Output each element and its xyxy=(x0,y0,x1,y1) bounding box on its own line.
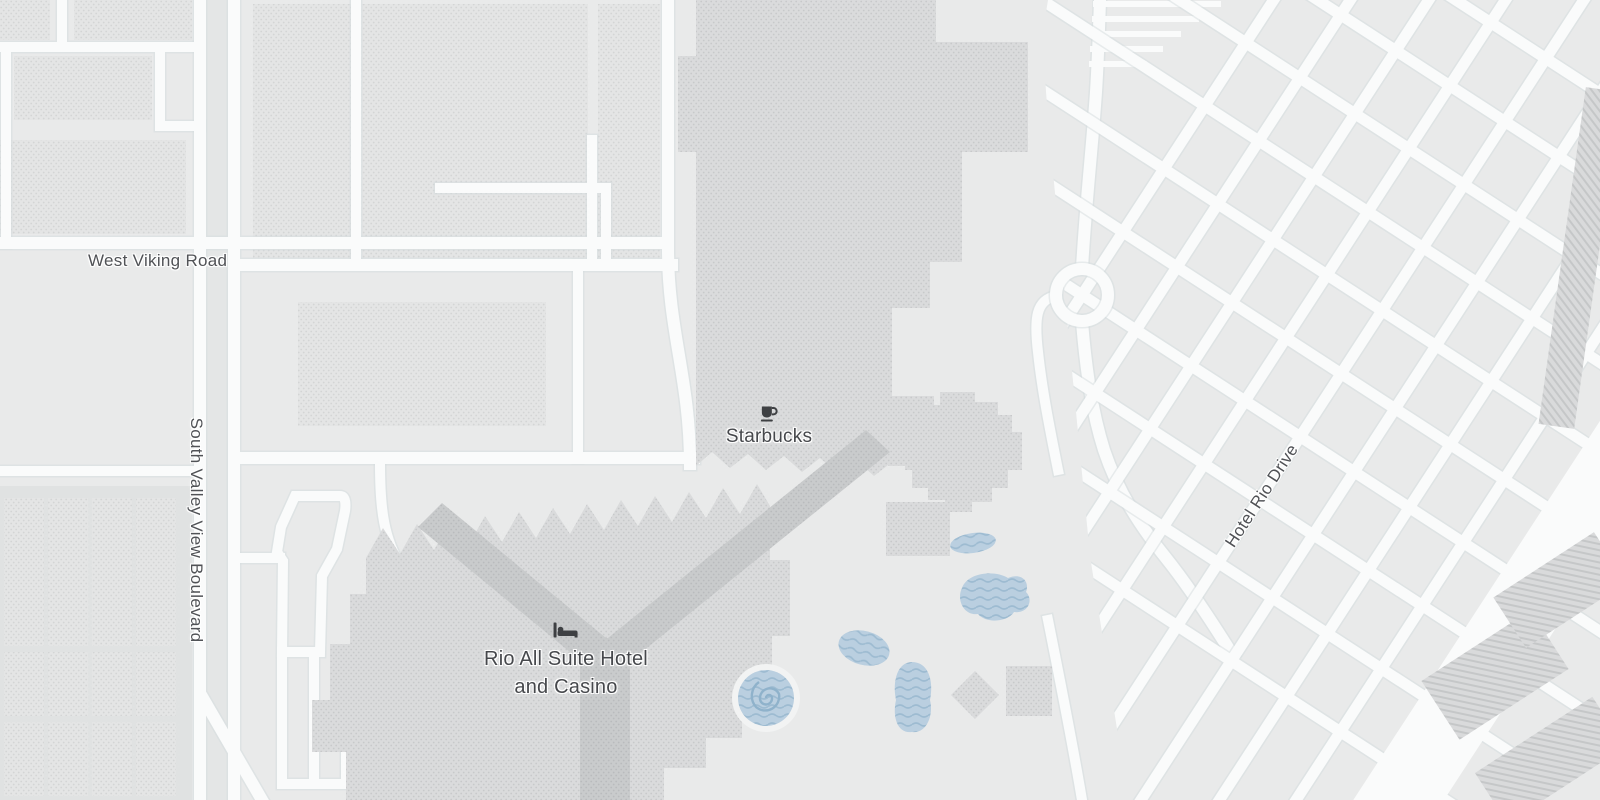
poi-starbucks[interactable]: Starbucks xyxy=(726,399,812,448)
parking-structure xyxy=(0,486,192,800)
poi-rio-hotel-label-line1: Rio All Suite Hotel xyxy=(484,645,648,673)
map-canvas[interactable]: West Viking Road South Valley View Boule… xyxy=(0,0,1600,800)
road-label-south-valley-view-boulevard: South Valley View Boulevard xyxy=(186,418,206,643)
pool-tall xyxy=(895,662,931,732)
boulevard-median xyxy=(205,0,229,800)
parking-lot-central xyxy=(298,302,546,426)
coffee-cup-icon xyxy=(757,399,781,423)
bed-icon xyxy=(552,620,579,642)
poi-starbucks-label: Starbucks xyxy=(726,426,812,448)
poi-rio-hotel-label-line2: and Casino xyxy=(484,673,648,701)
road-label-west-viking-road: West Viking Road xyxy=(88,251,227,271)
poi-rio-hotel[interactable]: Rio All Suite Hotel and Casino xyxy=(484,620,648,701)
poi-rio-hotel-label: Rio All Suite Hotel and Casino xyxy=(484,645,648,701)
building-small xyxy=(1006,666,1052,716)
